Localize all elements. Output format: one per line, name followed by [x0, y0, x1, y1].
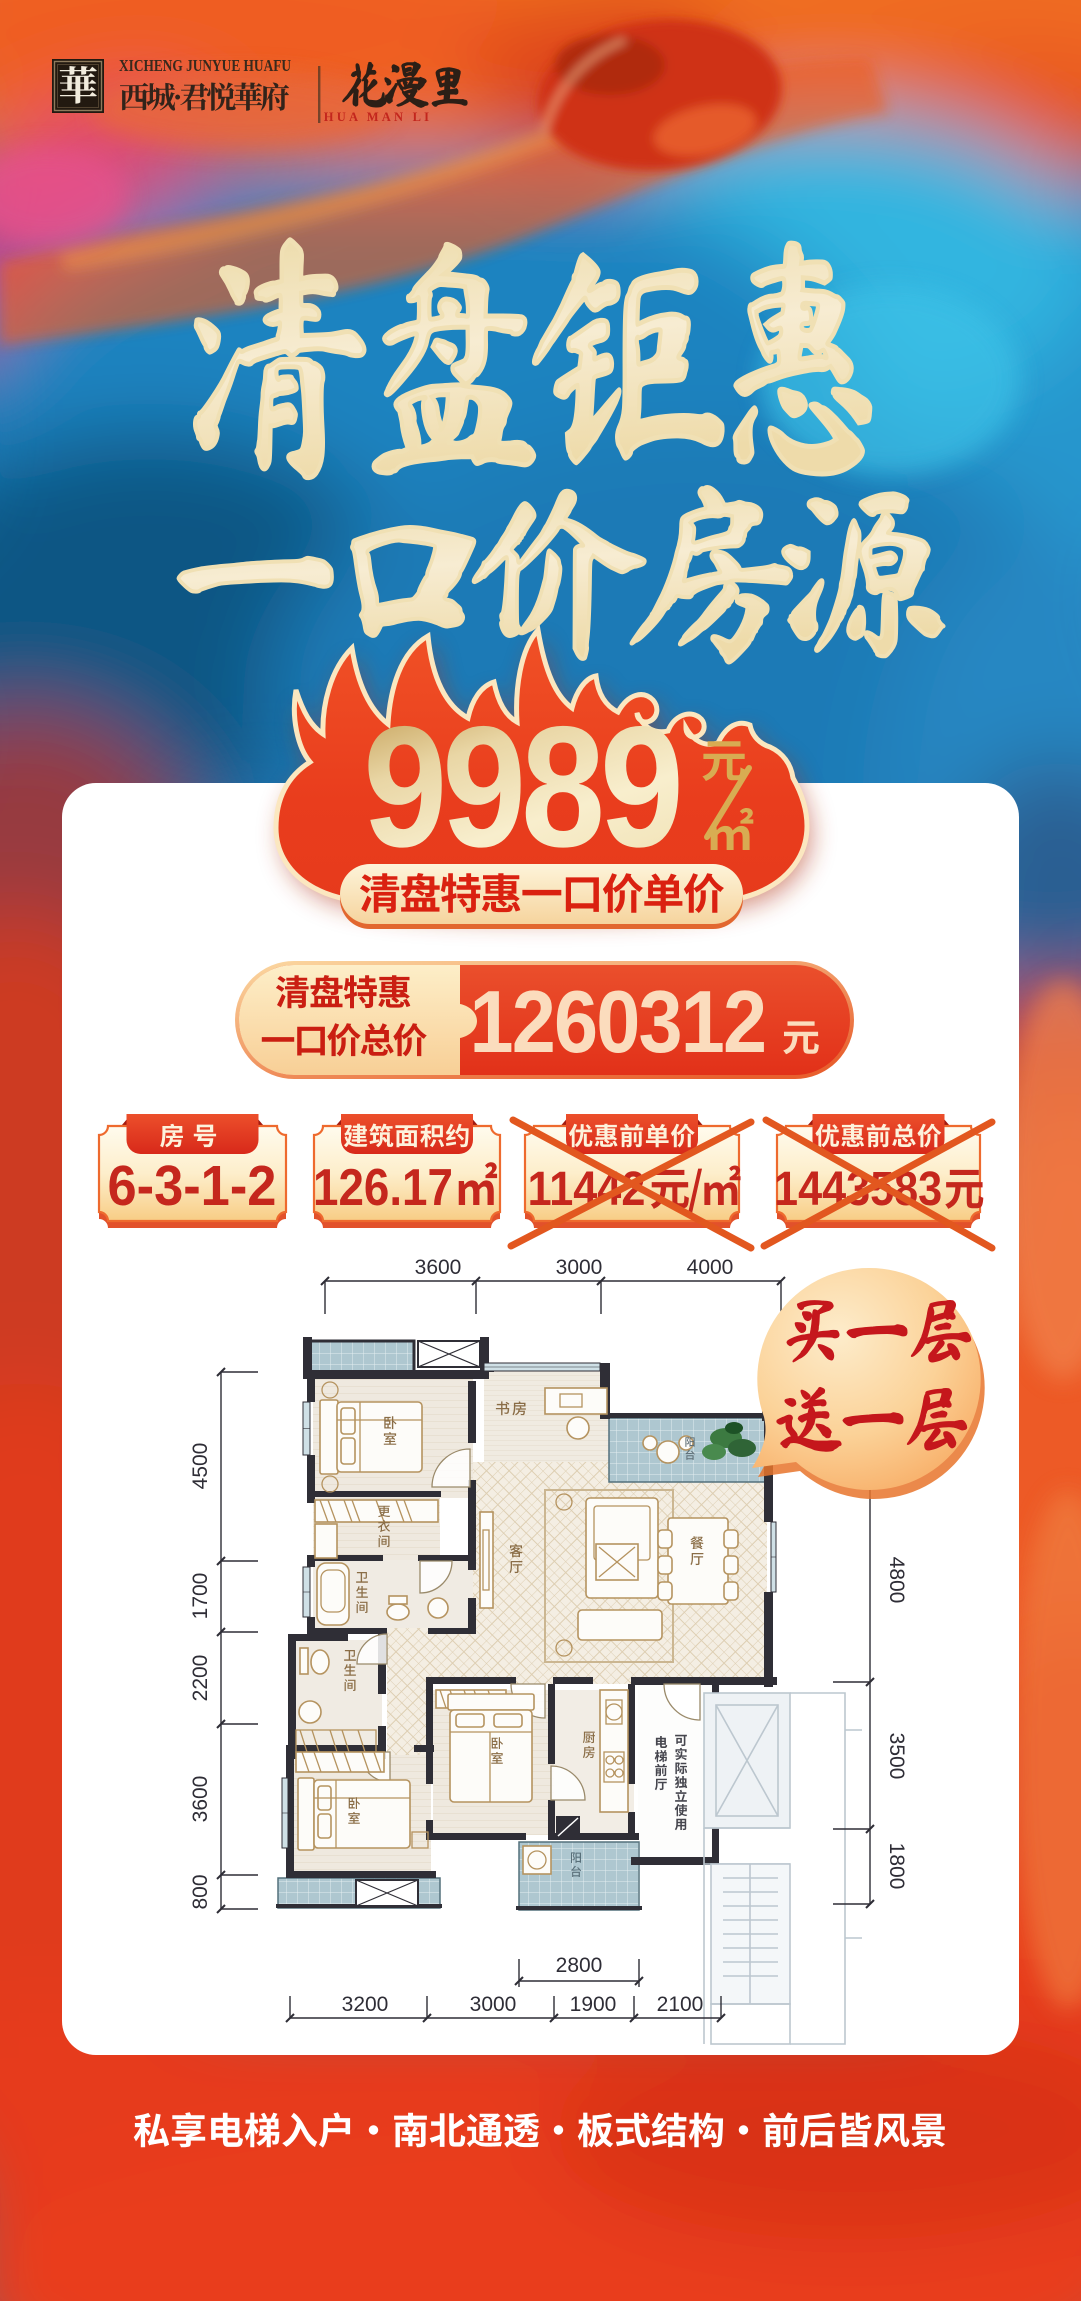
- svg-text:800: 800: [189, 1874, 212, 1909]
- svg-text:3500: 3500: [885, 1733, 908, 1780]
- svg-text:2100: 2100: [657, 1993, 704, 2016]
- svg-text:3000: 3000: [470, 1993, 517, 2016]
- svg-text:3600: 3600: [189, 1776, 212, 1823]
- svg-text:1260312: 1260312: [470, 972, 766, 1071]
- svg-text:HUA MAN LI: HUA MAN LI: [324, 110, 432, 124]
- svg-text:126.17: 126.17: [313, 1159, 453, 1216]
- svg-text:4000: 4000: [687, 1256, 734, 1279]
- svg-text:1900: 1900: [570, 1993, 617, 2016]
- svg-text:3200: 3200: [342, 1993, 389, 2016]
- svg-text:4500: 4500: [189, 1443, 212, 1490]
- svg-text:3000: 3000: [556, 1256, 603, 1279]
- svg-text:1700: 1700: [189, 1573, 212, 1620]
- svg-text:4800: 4800: [885, 1557, 908, 1604]
- svg-text:9989: 9989: [363, 691, 679, 883]
- svg-text:XICHENG JUNYUE HUAFU: XICHENG JUNYUE HUAFU: [119, 56, 291, 75]
- svg-text:2800: 2800: [556, 1954, 603, 1977]
- svg-text:2200: 2200: [189, 1655, 212, 1702]
- svg-text:6-3-1-2: 6-3-1-2: [107, 1153, 276, 1218]
- svg-text:1800: 1800: [885, 1843, 908, 1890]
- svg-text:3600: 3600: [415, 1256, 462, 1279]
